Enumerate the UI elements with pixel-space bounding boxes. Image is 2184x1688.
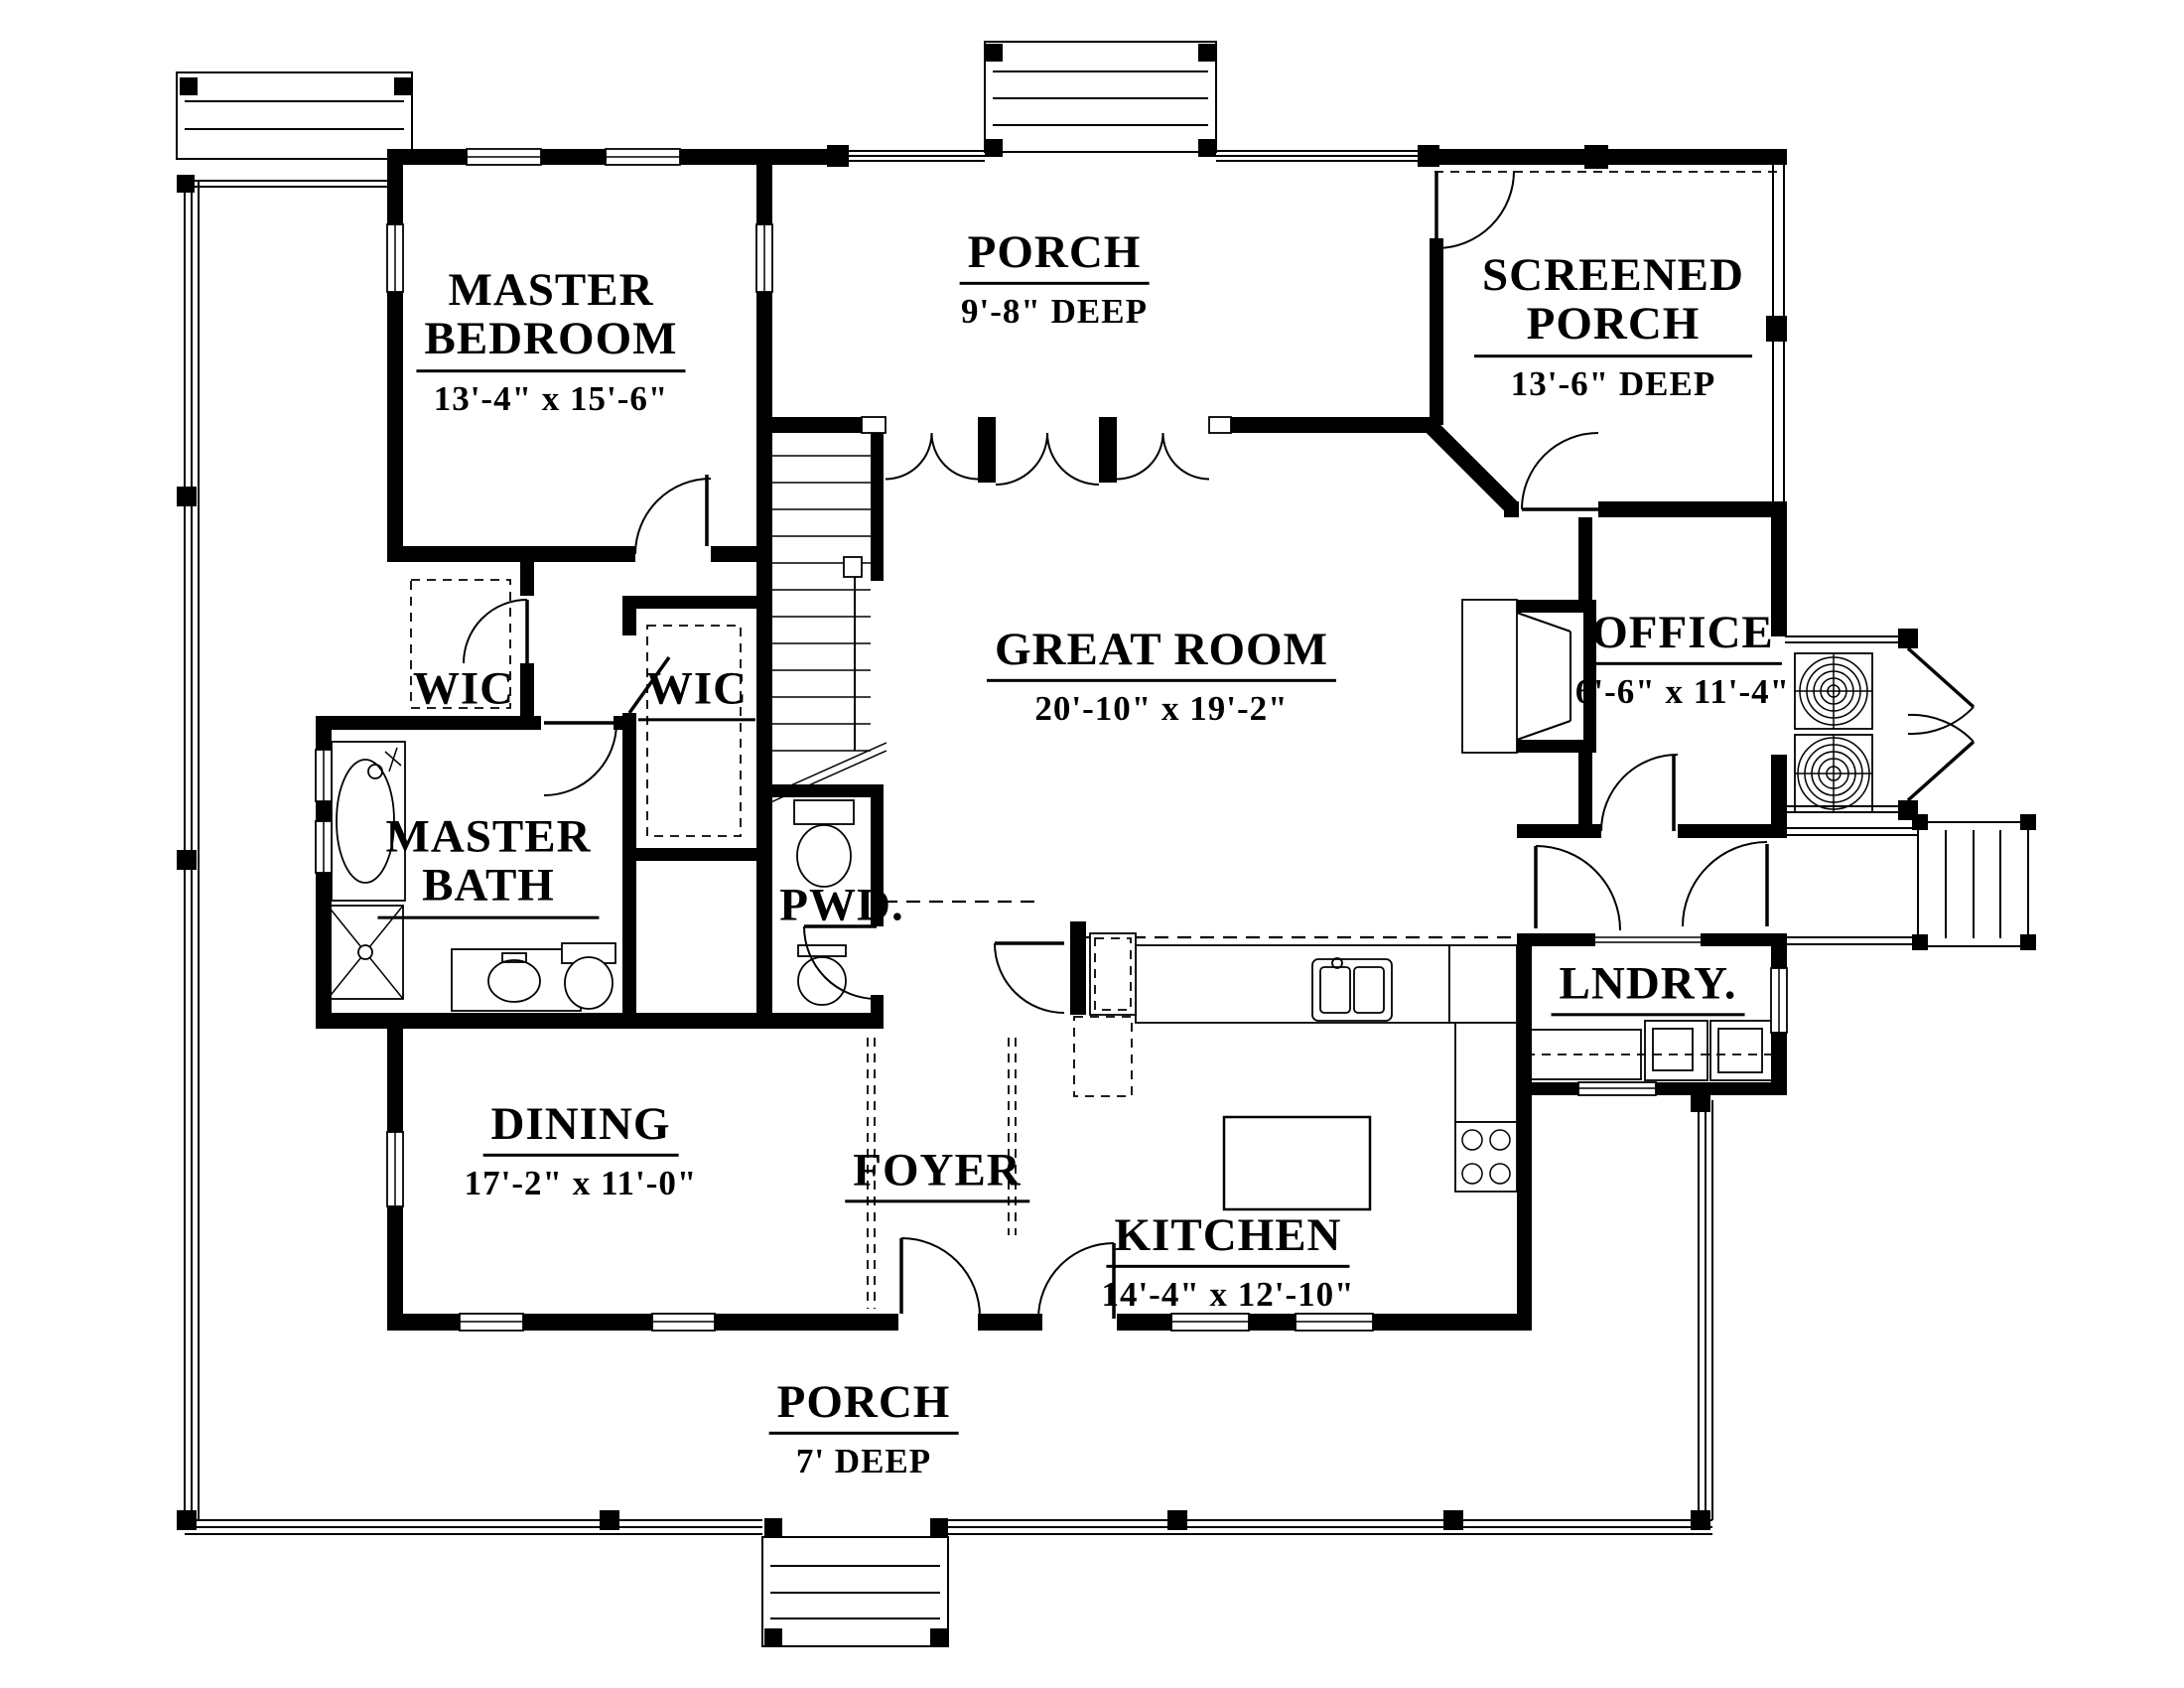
room-label-kitchen: KITCHEN 14'-4" x 12'-10" [1101, 1211, 1354, 1315]
room-label-foyer: FOYER [845, 1146, 1029, 1202]
kitchen-sink [1312, 958, 1392, 1021]
room-label-wic-right: WIC [638, 664, 755, 721]
kitchen-counter-east [1455, 1023, 1517, 1122]
steps-top-left [177, 72, 412, 193]
staircase [766, 429, 887, 804]
room-label-porch-bottom: PORCH 7' DEEP [769, 1378, 959, 1481]
hvac-fan-1 [1795, 653, 1872, 729]
room-label-screened-porch: SCREENEDPORCH 13'-6" DEEP [1474, 251, 1752, 404]
office-door [1601, 755, 1678, 831]
floor-plan: MASTERBEDROOM 13'-4" x 15'-6" PORCH 9'-8… [0, 0, 2184, 1688]
steps-front [762, 1518, 948, 1646]
room-label-wic-left: WIC [405, 664, 522, 721]
powder-toilet [794, 800, 854, 887]
room-label-office: OFFICE 6'-6" x 11'-4" [1575, 609, 1790, 712]
tub-faucet [385, 748, 401, 772]
range [1455, 1122, 1517, 1192]
room-label-master-bath: MASTERBATH [377, 813, 599, 919]
dryer [1710, 1021, 1774, 1080]
room-label-great-room: GREAT ROOM 20'-10" x 19'-2" [987, 626, 1336, 729]
great-room-french-doors [886, 433, 1209, 485]
master-bath-toilet [562, 943, 615, 1009]
kitchen-counter-corner [1449, 945, 1517, 1023]
room-label-laundry: LNDRY. [1552, 959, 1745, 1016]
room-label-powder: PWD. [771, 881, 911, 929]
newel-post [844, 557, 862, 577]
kitchen-island [1224, 1117, 1370, 1209]
kitchen-hall-door [995, 943, 1064, 1013]
hvac-fan-2 [1795, 735, 1872, 812]
room-label-porch-top: PORCH 9'-8" DEEP [960, 228, 1150, 332]
hvac-bay [1785, 629, 1974, 820]
pantry [1074, 1017, 1132, 1096]
room-label-dining: DINING 17'-2" x 11'-0" [465, 1100, 698, 1203]
shower [328, 906, 403, 999]
steps-top-center [985, 42, 1216, 157]
screened-porch-door [1436, 171, 1514, 248]
mud-hall-door-west [1536, 846, 1620, 930]
washer [1645, 1021, 1707, 1080]
master-bedroom-door [635, 475, 711, 554]
closet-shelf-wic-right [647, 626, 741, 836]
kitchen-counter [1136, 945, 1449, 1023]
refrigerator [1090, 933, 1136, 1015]
steps-side-right [1785, 814, 2036, 950]
wic-left-door [464, 600, 527, 663]
master-bath-door [544, 723, 616, 795]
mud-hall-door-east [1683, 842, 1767, 926]
screened-porch-hall-door [1522, 433, 1598, 509]
room-label-master-bedroom: MASTERBEDROOM 13'-4" x 15'-6" [416, 266, 685, 419]
front-door [901, 1238, 980, 1317]
